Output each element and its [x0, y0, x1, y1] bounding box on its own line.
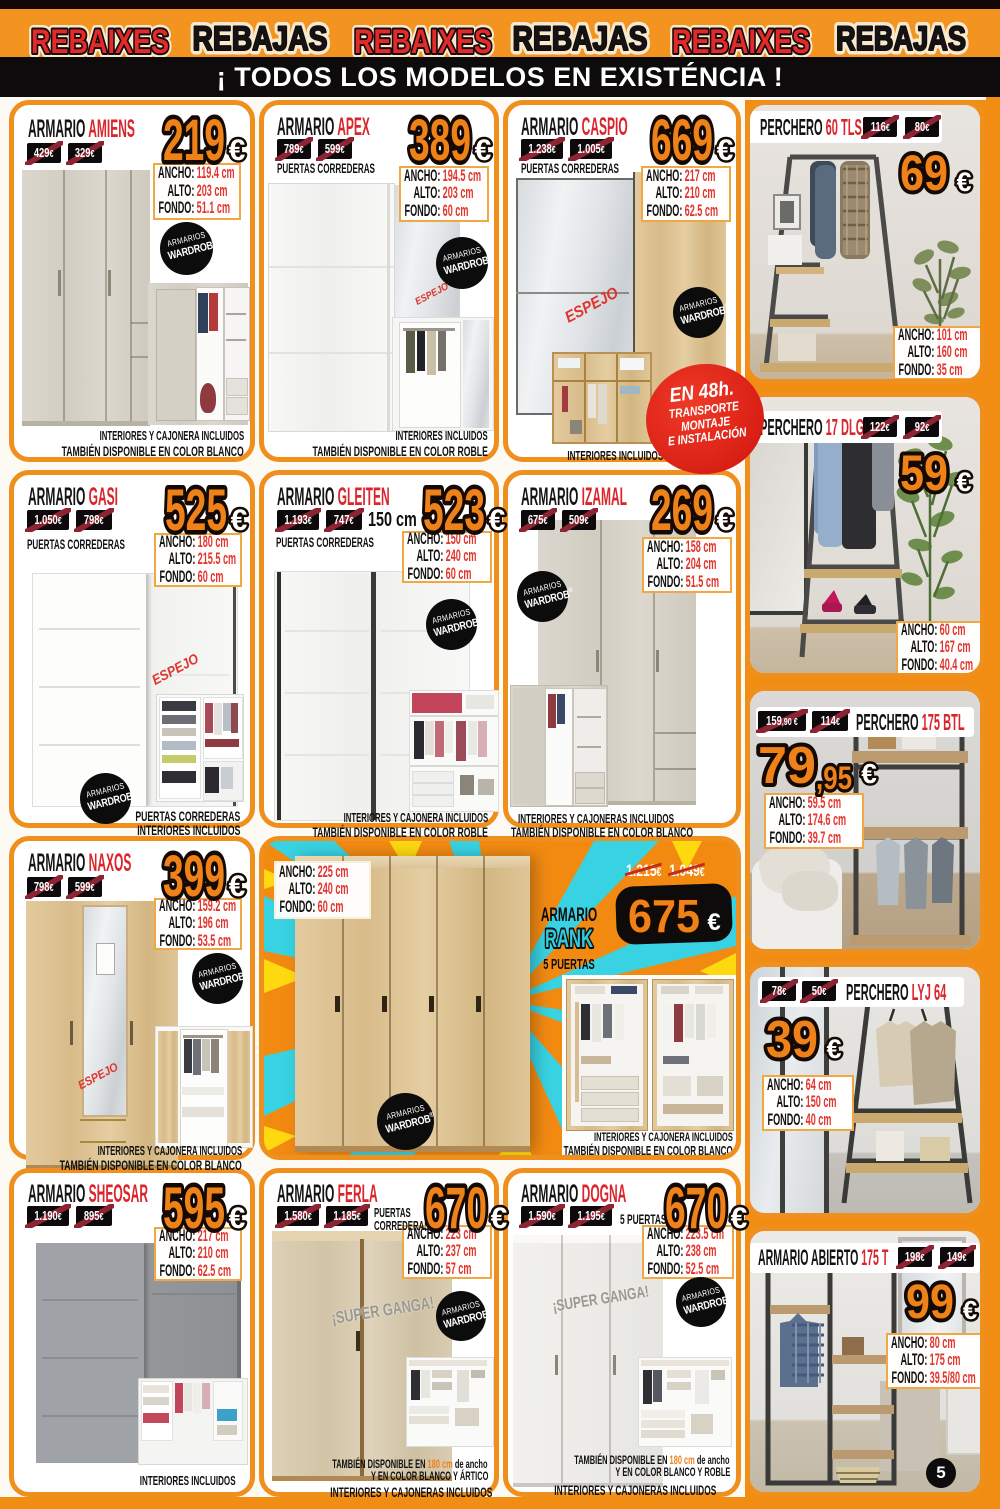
svg-text:€: € — [475, 134, 492, 167]
svg-text:€: € — [717, 504, 734, 537]
svg-text:€: € — [731, 1202, 748, 1235]
svg-text:€: € — [489, 504, 506, 537]
svg-text:€: € — [717, 134, 734, 167]
svg-text:€: € — [231, 504, 248, 537]
svg-text:€: € — [956, 167, 971, 197]
svg-text:€: € — [229, 870, 246, 903]
svg-text:670: 670 — [425, 1176, 487, 1239]
svg-text:79: 79 — [758, 737, 816, 795]
svg-text:523: 523 — [423, 478, 485, 541]
svg-text:595: 595 — [163, 1176, 225, 1239]
svg-text:€: € — [707, 909, 720, 936]
svg-text:69: 69 — [900, 145, 948, 199]
svg-text:€: € — [826, 1034, 841, 1064]
svg-text:€: € — [229, 134, 246, 167]
svg-text:99: 99 — [906, 1276, 954, 1327]
svg-text:€: € — [861, 758, 877, 789]
svg-text:REBAIXES: REBAIXES — [31, 23, 169, 57]
svg-text:€: € — [491, 1202, 508, 1235]
svg-text:REBAJAS: REBAJAS — [513, 20, 648, 57]
svg-text:€: € — [956, 467, 971, 497]
svg-text:269: 269 — [651, 478, 713, 541]
svg-text:REBAJAS: REBAJAS — [193, 20, 328, 57]
svg-text:670: 670 — [665, 1176, 727, 1239]
svg-text:,95: ,95 — [816, 760, 852, 796]
svg-text:€: € — [963, 1295, 977, 1325]
svg-text:399: 399 — [163, 844, 225, 907]
svg-text:39: 39 — [766, 1011, 818, 1067]
svg-text:€: € — [229, 1202, 246, 1235]
svg-text:59: 59 — [900, 445, 948, 499]
svg-text:675: 675 — [628, 890, 700, 942]
svg-text:REBAIXES: REBAIXES — [672, 23, 810, 57]
svg-text:REBAJAS: REBAJAS — [836, 20, 966, 57]
svg-text:REBAIXES: REBAIXES — [354, 23, 492, 57]
svg-text:525: 525 — [165, 478, 227, 541]
svg-text:219: 219 — [163, 108, 225, 171]
svg-text:RANK: RANK — [545, 925, 593, 953]
svg-text:389: 389 — [409, 108, 471, 171]
svg-text:669: 669 — [651, 108, 713, 171]
